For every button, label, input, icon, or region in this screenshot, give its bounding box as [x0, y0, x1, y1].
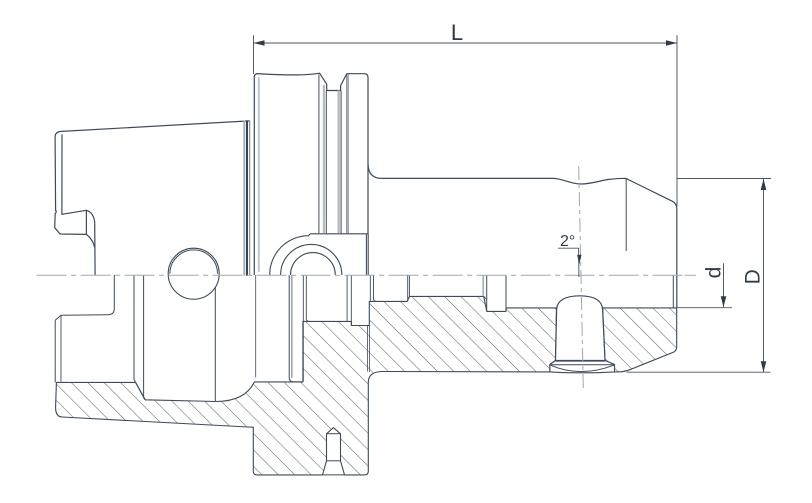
svg-text:d: d [703, 267, 726, 279]
svg-text:L: L [451, 20, 463, 45]
svg-text:D: D [742, 269, 765, 284]
svg-text:2°: 2° [560, 233, 575, 250]
